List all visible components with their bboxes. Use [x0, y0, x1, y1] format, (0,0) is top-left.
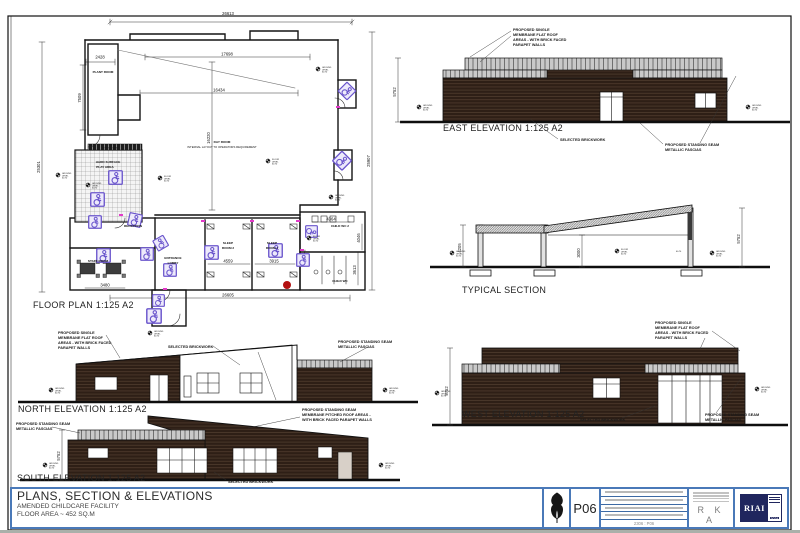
dim-2428: 2428 [95, 55, 105, 60]
section-sloped-roof-slab [544, 205, 692, 233]
riai-logo: RIAI 2024 [740, 494, 782, 522]
svg-text:MEMBRANE FLAT ROOF: MEMBRANE FLAT ROOF [58, 336, 104, 340]
svg-text:METALLIC FASCIAS: METALLIC FASCIAS [665, 148, 702, 152]
room-plant: PLANT ROOM [93, 70, 114, 74]
svg-text:GROUNDLEVEL60.70: GROUNDLEVEL60.70 [716, 251, 726, 258]
svg-text:PARAPET WALLS: PARAPET WALLS [513, 43, 546, 47]
room-sleep2-2: ROOM 2 [222, 246, 234, 250]
room-service-yard: SERVICE YARD [102, 147, 118, 150]
svg-text:GROUNDLEVEL60.70: GROUNDLEVEL60.70 [423, 105, 433, 112]
dim-3480: 3480 [100, 283, 110, 288]
north-brick-right [297, 368, 372, 402]
riai-year: 2024 [770, 517, 779, 518]
svg-text:GROUNDLEVEL60.70: GROUNDLEVEL60.70 [55, 388, 65, 395]
svg-text:PROPOSED STANDING SEAM: PROPOSED STANDING SEAM [665, 143, 719, 147]
south-elevation: 5752 PROPOSED STANDING SEAM METALLIC FAS… [16, 408, 400, 484]
svg-text:GROUNDLEVEL60.70: GROUNDLEVEL60.70 [62, 173, 72, 180]
svg-text:MEMBRANE PITCHED ROOF AREAS -: MEMBRANE PITCHED ROOF AREAS - [302, 413, 371, 417]
section-dim-lines [460, 208, 745, 267]
section-dim-5752: 5752 [736, 234, 741, 244]
architect-cell: R K A [689, 489, 735, 527]
north-fascia-band [297, 360, 372, 368]
revision-row [601, 497, 687, 505]
room-dayroom-1: DAY ROOM [214, 140, 231, 144]
north-elevation-label: NORTH ELEVATION 1:125 A2 [18, 404, 147, 414]
svg-text:PROPOSED STANDING SEAM: PROPOSED STANDING SEAM [338, 340, 392, 344]
room-sleep1-1: SLEEP [267, 241, 277, 245]
east-brick-body [443, 78, 727, 122]
riai-logo-side: 2024 [768, 495, 781, 521]
svg-text:PARAPET WALLS: PARAPET WALLS [655, 336, 688, 340]
east-flat-roof-note: PROPOSED SINGLE MEMBRANE FLAT ROOF AREAS… [470, 28, 567, 62]
sheet-subtitle: AMENDED CHILDCARE FACILITY [17, 503, 537, 511]
revision-note: 2306 : P06 [601, 520, 687, 527]
svg-text:MEMBRANE FLAT ROOF: MEMBRANE FLAT ROOF [655, 326, 701, 330]
svg-text:PARAPET WALLS: PARAPET WALLS [58, 346, 91, 350]
dim-26613: 26613 [222, 11, 234, 16]
room-childwc: CHILD WC [332, 279, 348, 283]
west-parapet [482, 348, 738, 364]
dim-7509: 7509 [77, 93, 82, 103]
drawing-canvas: 26613 17698 16434 16220 25301 25907 2660… [0, 0, 800, 533]
svg-text:GROUNDLEVEL60.70: GROUNDLEVEL60.70 [761, 387, 771, 394]
svg-text:SELECTED BRICKWORK: SELECTED BRICKWORK [168, 345, 214, 349]
east-parapet-band [465, 58, 722, 70]
dim-25907: 25907 [366, 155, 371, 167]
dim-26605: 26605 [222, 293, 234, 298]
section-dim-3000: 3000 [576, 248, 581, 258]
revision-row [601, 489, 687, 497]
section-level-value: 60.70 [676, 251, 682, 253]
dim-4559: 4559 [223, 259, 233, 264]
practice-logo [544, 489, 571, 527]
svg-text:PROPOSED SINGLE: PROPOSED SINGLE [513, 28, 550, 32]
room-dayroom-2: INTERNAL LAYOUT TO OPERATORS REQUIREMENT [187, 145, 257, 149]
red-dot [283, 281, 291, 289]
riai-cell: RIAI 2024 [735, 489, 787, 527]
svg-text:FLOORLEVEL60.70: FLOORLEVEL60.70 [621, 249, 629, 256]
north-flat-roof-note: PROPOSED SINGLE MEMBRANE FLAT ROOF AREAS… [58, 331, 120, 358]
room-lobby-2: LOBBY [168, 261, 180, 265]
title-block-main: PLANS, SECTION & ELEVATIONS AMENDED CHIL… [12, 489, 544, 527]
svg-text:METALLIC FASCIAS: METALLIC FASCIAS [16, 427, 53, 431]
north-fascia-note: PROPOSED STANDING SEAM METALLIC FASCIAS [338, 340, 392, 362]
section-flat-roof-slab [476, 225, 548, 233]
svg-text:METALLIC FASCIAS: METALLIC FASCIAS [338, 345, 375, 349]
dim-4364: 4364 [326, 217, 336, 222]
south-fascia-band [78, 430, 205, 440]
svg-text:MEMBRANE FLAT ROOF: MEMBRANE FLAT ROOF [513, 33, 559, 37]
architect-address-lines [691, 491, 731, 503]
room-play-1: HARD SURFACE [96, 160, 121, 164]
west-elevation: 5752 PROPOSED SINGLE MEMBRANE FLAT ROOF … [432, 321, 788, 425]
room-sleep2-1: SLEEP [223, 241, 233, 245]
svg-text:GROUNDLEVEL60.70: GROUNDLEVEL60.70 [389, 388, 399, 395]
svg-text:GROUNDLEVEL60.70: GROUNDLEVEL60.70 [752, 105, 762, 112]
sheet-floor-area: FLOOR AREA ~ 452 SQ.M [17, 511, 537, 519]
svg-text:SELECTED BRICKWORK: SELECTED BRICKWORK [580, 418, 626, 422]
revision-number: P06 [571, 489, 601, 527]
south-elevation-label: SOUTH ELEVATION 1:125 A2 [17, 473, 145, 483]
room-reception: RECEPTION [124, 224, 143, 228]
phoenix-logo-icon [546, 492, 568, 524]
east-dim-5752: 5752 [392, 87, 397, 97]
svg-text:AREAS - WITH BRICK FACED: AREAS - WITH BRICK FACED [655, 331, 709, 335]
room-lobby-1: ENTRANCE [164, 256, 181, 260]
west-elevation-label: WEST ELEVATION 1:125 A2 [462, 409, 584, 419]
svg-text:GROUNDLEVEL60.70: GROUNDLEVEL60.70 [322, 67, 332, 74]
svg-text:FLOORLEVEL60.70: FLOORLEVEL60.70 [313, 236, 321, 243]
east-door [600, 92, 623, 122]
typical-section-label: TYPICAL SECTION [462, 285, 546, 295]
svg-text:AREAS - WITH BRICK FACED: AREAS - WITH BRICK FACED [58, 341, 112, 345]
svg-text:METALLIC FASCIAS: METALLIC FASCIAS [705, 418, 742, 422]
dim-17698: 17698 [221, 52, 233, 57]
svg-text:GROUNDLEVEL60.70: GROUNDLEVEL60.70 [456, 251, 466, 258]
svg-text:GROUNDLEVEL60.70: GROUNDLEVEL60.70 [385, 463, 395, 470]
south-dim-5752: 5752 [56, 451, 61, 461]
revision-row [601, 512, 687, 520]
south-fascia-note: PROPOSED STANDING SEAM METALLIC FASCIAS [16, 422, 80, 433]
title-block: PLANS, SECTION & ELEVATIONS AMENDED CHIL… [10, 487, 789, 529]
dim-16220: 16220 [206, 132, 211, 144]
dim-4046: 4046 [356, 233, 361, 243]
dim-16434: 16434 [213, 88, 225, 93]
floor-plan: 26613 17698 16434 16220 25301 25907 2660… [33, 11, 375, 326]
architect-name: R K A [691, 505, 731, 525]
typical-section: 4205 3000 5752 60.70 TYPICAL SECTION [430, 205, 770, 295]
revision-row [601, 505, 687, 513]
sheet-title: PLANS, SECTION & ELEVATIONS [17, 490, 537, 503]
svg-text:GROUNDLEVEL60.70: GROUNDLEVEL60.70 [441, 391, 451, 398]
west-flat-roof-note: PROPOSED SINGLE MEMBRANE FLAT ROOF AREAS… [655, 321, 740, 351]
drawing-sheet: 26613 17698 16434 16220 25301 25907 2660… [0, 0, 800, 533]
riai-logo-text: RIAI [741, 495, 768, 521]
svg-text:SELECTED BRICKWORK: SELECTED BRICKWORK [560, 138, 606, 142]
dim-25301: 25301 [36, 161, 41, 173]
svg-text:WITH BRICK FACED PARAPET WALLS: WITH BRICK FACED PARAPET WALLS [302, 418, 372, 422]
south-pitched-roof-note: PROPOSED STANDING SEAM MEMBRANE PITCHED … [248, 408, 372, 428]
svg-text:PROPOSED STANDING SEAM: PROPOSED STANDING SEAM [705, 413, 759, 417]
svg-text:PROPOSED STANDING SEAM: PROPOSED STANDING SEAM [16, 422, 70, 426]
room-staff: STAFF ROOM [88, 259, 109, 263]
svg-text:GROUNDLEVEL60.70: GROUNDLEVEL60.70 [335, 195, 345, 202]
dim-3613: 3613 [352, 265, 357, 275]
svg-text:PROPOSED SINGLE: PROPOSED SINGLE [655, 321, 692, 325]
section-right-wall [688, 212, 692, 240]
revision-table: 2306 : P06 [601, 489, 689, 527]
room-childwc2: CHILD WC 2 [331, 224, 349, 228]
svg-text:GROUNDLEVEL60.70: GROUNDLEVEL60.70 [49, 463, 59, 470]
east-elevation-label: EAST ELEVATION 1:125 A2 [443, 123, 563, 133]
east-elevation: 5752 PROPOSED SINGLE MEMBRANE FLAT ROOF … [392, 28, 790, 152]
svg-text:GROUNDLEVEL60.70: GROUNDLEVEL60.70 [154, 331, 164, 338]
svg-text:AREAS - WITH BRICK FACED: AREAS - WITH BRICK FACED [513, 38, 567, 42]
room-sleep1-2: ROOM 1 [266, 246, 278, 250]
svg-text:FLOORLEVEL60.70: FLOORLEVEL60.70 [272, 159, 280, 166]
north-elevation: PROPOSED SINGLE MEMBRANE FLAT ROOF AREAS… [18, 331, 418, 414]
svg-text:FLOORLEVEL60.70: FLOORLEVEL60.70 [164, 176, 172, 183]
svg-text:SELECTED BRICKWORK: SELECTED BRICKWORK [228, 480, 274, 484]
svg-text:PROPOSED SINGLE: PROPOSED SINGLE [58, 331, 95, 335]
room-play-2: PLAY AREA [96, 165, 114, 169]
floor-plan-label: FLOOR PLAN 1:125 A2 [33, 300, 134, 310]
dim-3915: 3915 [269, 259, 279, 264]
svg-text:PROPOSED STANDING SEAM: PROPOSED STANDING SEAM [302, 408, 356, 412]
